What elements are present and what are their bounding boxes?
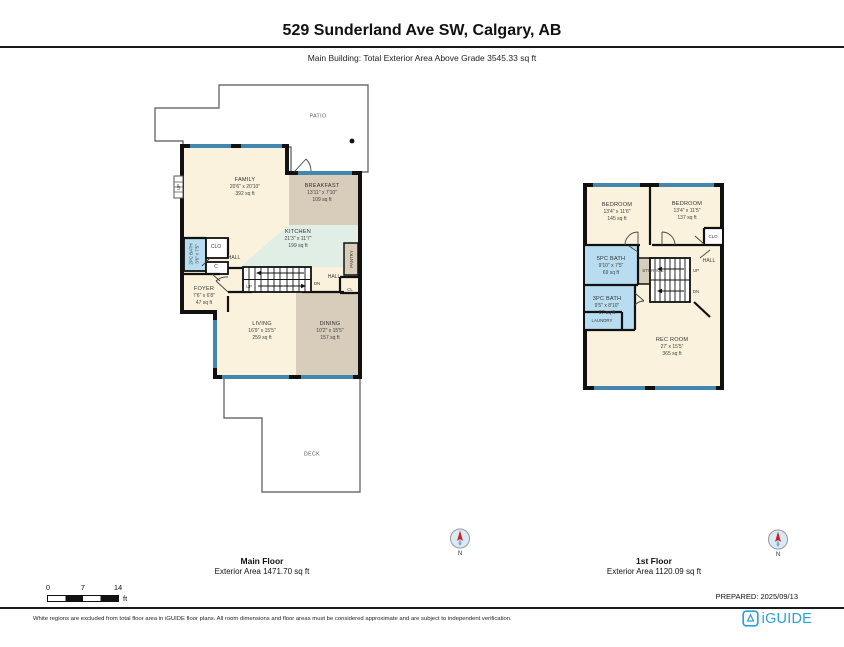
stairs-dn-label: DN xyxy=(314,281,320,287)
room-name: 2PC BATH xyxy=(188,243,194,264)
room-label-dining: DINING 10'2" x 15'5" 157 sq ft xyxy=(316,321,343,341)
room-area: 392 sq ft xyxy=(230,191,260,198)
room-area: 259 sq ft xyxy=(248,335,275,342)
hall-label: HALL xyxy=(228,255,241,262)
compass-icon: N xyxy=(765,528,791,558)
room-name: BREAKFAST xyxy=(305,183,340,190)
closet-label-clo: CLO xyxy=(211,244,221,251)
room-dims: 13'11" x 7'10" xyxy=(305,190,340,197)
storage-label: STORAGE xyxy=(642,268,663,274)
deck-label: DECK xyxy=(304,452,320,459)
floor-plan-drawing xyxy=(0,0,844,647)
floor-area: Exterior Area 1120.09 sq ft xyxy=(607,567,701,576)
room-area: 67 sq ft xyxy=(593,310,622,317)
room-name: KITCHEN xyxy=(284,229,311,236)
room-label-5pc-bath: 5PC BATH 9'10" x 7'5" 69 sq ft xyxy=(597,256,626,276)
first-floor-caption: 1st Floor Exterior Area 1120.09 sq ft xyxy=(607,556,701,576)
room-area: 157 sq ft xyxy=(316,335,343,342)
room-dims: 10'2" x 15'5" xyxy=(316,328,343,335)
main-floor-deck-outline xyxy=(224,378,360,492)
compass-north-label: N xyxy=(458,551,462,557)
room-label-living: LIVING 16'9" x 15'5" 259 sq ft xyxy=(248,321,275,341)
hall-label-3: HALL xyxy=(703,258,716,265)
room-label-family: FAMILY 20'6" x 20'10" 392 sq ft xyxy=(230,177,260,197)
room-label-kitchen: KITCHEN 21'3" x 11'7" 199 sq ft xyxy=(284,229,311,249)
room-name: FAMILY xyxy=(230,177,260,184)
room-dims: 13'4" x 11'5" xyxy=(672,208,702,215)
room-dims: 9'10" x 7'5" xyxy=(597,263,626,270)
room-dims: 13'4" x 11'6" xyxy=(602,209,632,216)
room-area: 145 sq ft xyxy=(602,216,632,223)
room-name: DINING xyxy=(316,321,343,328)
room-dims: 21'3" x 11'7" xyxy=(284,236,311,243)
room-label-2pc-bath: 2PC BATH 3'6" x 7'5" xyxy=(188,243,199,264)
closet-label-clo-2: CLO xyxy=(708,234,717,240)
main-floor-caption: Main Floor Exterior Area 1471.70 sq ft xyxy=(215,556,310,576)
room-name: BEDROOM xyxy=(672,201,702,208)
stairs-up-label-2: UP xyxy=(693,268,699,274)
room-dims: 27' x 15'5" xyxy=(656,344,688,351)
room-label-foyer: FOYER 7'6" x 6'8" 47 sq ft xyxy=(193,286,215,306)
room-name: REC ROOM xyxy=(656,337,688,344)
room-label-breakfast: BREAKFAST 13'11" x 7'10" 109 sq ft xyxy=(305,183,340,203)
footer-divider xyxy=(0,607,844,609)
scale-tick-0: 0 xyxy=(46,583,50,592)
room-name: 3PC BATH xyxy=(593,296,622,303)
room-name: BEDROOM xyxy=(602,202,632,209)
floor-title: 1st Floor xyxy=(607,556,701,566)
floor-area: Exterior Area 1471.70 sq ft xyxy=(215,567,310,576)
iguide-logo-icon xyxy=(742,610,759,627)
room-area: 199 sq ft xyxy=(284,243,311,250)
room-name: 5PC BATH xyxy=(597,256,626,263)
compass-north-label: N xyxy=(776,552,780,558)
patio-label: PATIO xyxy=(310,114,327,121)
room-dims: 16'9" x 15'5" xyxy=(248,328,275,335)
scale-bar xyxy=(47,595,119,602)
room-dims: 3'6" x 7'5" xyxy=(194,243,200,264)
room-label-3pc-bath: 3PC BATH 9'5" x 8'10" 67 sq ft xyxy=(593,296,622,316)
closet-label-c: C xyxy=(214,264,218,271)
room-area: 69 sq ft xyxy=(597,270,626,277)
floor-title: Main Floor xyxy=(215,556,310,566)
entry-up-label: UP xyxy=(176,184,182,190)
room-dims: 9'5" x 8'10" xyxy=(593,303,622,310)
room-area: 109 sq ft xyxy=(305,197,340,204)
stairs-up-label: UP xyxy=(246,284,252,290)
main-floor-stairs xyxy=(243,267,311,292)
stairs-dn-label-2: DN xyxy=(693,289,699,295)
hall-label-2: HALL xyxy=(328,274,341,281)
room-name: LIVING xyxy=(248,321,275,328)
room-area: 47 sq ft xyxy=(193,300,215,307)
room-name: FOYER xyxy=(193,286,215,293)
compass-icon: N xyxy=(447,527,473,557)
pantry-label: PANTRY xyxy=(349,250,355,267)
room-area: 365 sq ft xyxy=(656,351,688,358)
iguide-brand-text: iGUIDE xyxy=(762,611,812,627)
room-label-bedroom-right: BEDROOM 13'4" x 11'5" 137 sq ft xyxy=(672,201,702,221)
first-floor-stairs xyxy=(650,258,690,302)
scale-unit-label: ft xyxy=(123,594,127,603)
laundry-label: LAUNDRY xyxy=(592,318,613,324)
floor-plan-page: 529 Sunderland Ave SW, Calgary, AB Main … xyxy=(0,0,844,647)
iguide-brand: iGUIDE xyxy=(742,610,812,627)
room-area: 137 sq ft xyxy=(672,215,702,222)
room-label-bedroom-left: BEDROOM 13'4" x 11'6" 145 sq ft xyxy=(602,202,632,222)
footer-disclaimer: White regions are excluded from total fl… xyxy=(33,616,512,622)
prepared-date: PREPARED: 2025/09/13 xyxy=(716,592,798,601)
closet-label-cl: CL xyxy=(347,287,353,293)
room-dims: 7'6" x 6'8" xyxy=(193,293,215,300)
scale-tick-14: 14 xyxy=(114,583,122,592)
room-label-rec-room: REC ROOM 27' x 15'5" 365 sq ft xyxy=(656,337,688,357)
room-dims: 20'6" x 20'10" xyxy=(230,184,260,191)
scale-tick-7: 7 xyxy=(81,583,85,592)
